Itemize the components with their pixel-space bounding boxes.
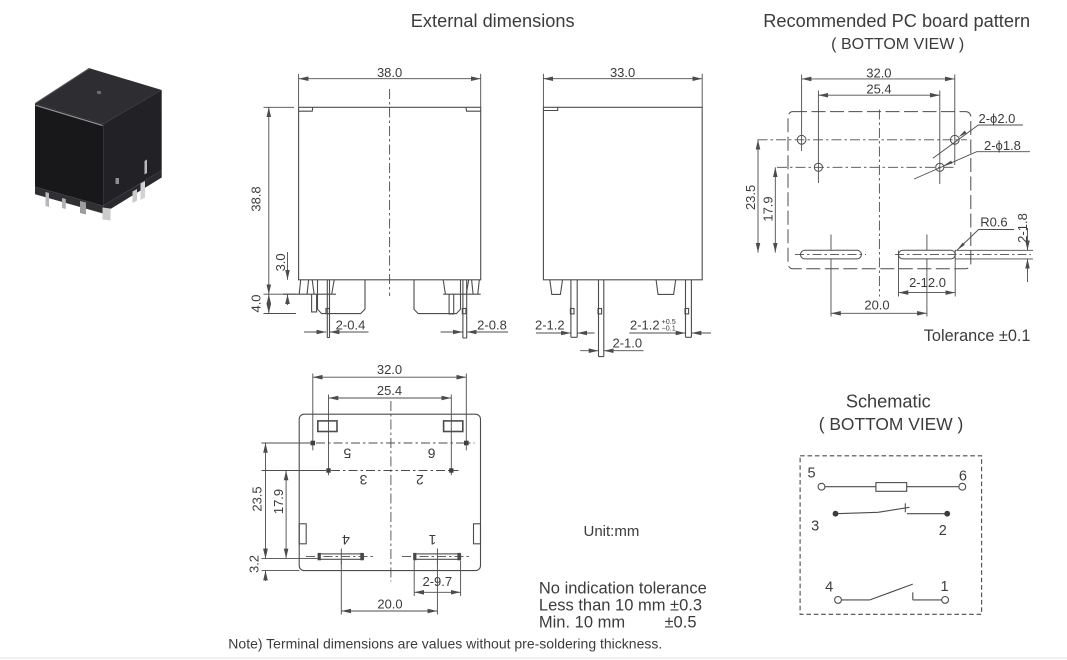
svg-text:32.0: 32.0 bbox=[377, 362, 402, 377]
svg-text:17.9: 17.9 bbox=[271, 489, 286, 514]
svg-text:Note) Terminal dimensions are: Note) Terminal dimensions are values wit… bbox=[228, 636, 662, 652]
svg-text:3.0: 3.0 bbox=[273, 253, 288, 271]
svg-text:R0.6: R0.6 bbox=[980, 214, 1007, 229]
svg-text:Less than 10 mm ±0.3: Less than 10 mm ±0.3 bbox=[539, 596, 702, 614]
svg-text:±0.5: ±0.5 bbox=[665, 613, 697, 631]
svg-text:Tolerance ±0.1: Tolerance ±0.1 bbox=[924, 327, 1031, 345]
svg-text:2: 2 bbox=[416, 472, 424, 488]
svg-text:20.0: 20.0 bbox=[864, 297, 889, 312]
svg-text:4: 4 bbox=[825, 579, 833, 595]
svg-text:25.4: 25.4 bbox=[377, 383, 402, 398]
svg-text:External dimensions: External dimensions bbox=[411, 11, 575, 31]
svg-text:20.0: 20.0 bbox=[377, 597, 402, 612]
svg-text:2-1.8: 2-1.8 bbox=[1015, 213, 1030, 243]
svg-text:32.0: 32.0 bbox=[866, 65, 891, 80]
svg-text:−0.1: −0.1 bbox=[662, 323, 676, 332]
svg-text:38.8: 38.8 bbox=[249, 186, 264, 211]
svg-text:Unit:mm: Unit:mm bbox=[584, 523, 640, 540]
svg-text:6: 6 bbox=[959, 468, 967, 484]
svg-text:25.4: 25.4 bbox=[866, 82, 891, 97]
svg-text:3.2: 3.2 bbox=[246, 555, 261, 573]
svg-text:2-1.0: 2-1.0 bbox=[613, 336, 643, 351]
svg-text:3: 3 bbox=[811, 519, 819, 535]
svg-text:2-ϕ1.8: 2-ϕ1.8 bbox=[984, 138, 1021, 153]
svg-text:23.5: 23.5 bbox=[250, 486, 265, 511]
svg-text:( BOTTOM VIEW ): ( BOTTOM VIEW ) bbox=[831, 36, 964, 53]
svg-text:2-0.4: 2-0.4 bbox=[336, 317, 366, 332]
svg-text:Min. 10 mm: Min. 10 mm bbox=[539, 613, 625, 631]
svg-text:17.9: 17.9 bbox=[761, 196, 776, 221]
svg-text:Recommended PC board pattern: Recommended PC board pattern bbox=[763, 11, 1030, 31]
svg-text:33.0: 33.0 bbox=[610, 65, 635, 80]
svg-text:4.0: 4.0 bbox=[249, 294, 264, 312]
svg-text:4: 4 bbox=[342, 532, 350, 548]
svg-text:1: 1 bbox=[428, 532, 436, 548]
svg-text:6: 6 bbox=[427, 446, 435, 462]
svg-text:1: 1 bbox=[940, 579, 948, 595]
svg-text:3: 3 bbox=[359, 472, 367, 488]
svg-text:2-0.8: 2-0.8 bbox=[477, 317, 507, 332]
svg-text:23.5: 23.5 bbox=[743, 185, 758, 210]
svg-text:2: 2 bbox=[939, 523, 947, 539]
svg-text:2-1.2: 2-1.2 bbox=[630, 318, 660, 333]
svg-text:2-1.2: 2-1.2 bbox=[535, 318, 565, 333]
svg-text:Schematic: Schematic bbox=[846, 392, 931, 412]
svg-text:2-9.7: 2-9.7 bbox=[422, 574, 452, 589]
svg-text:38.0: 38.0 bbox=[377, 65, 402, 80]
svg-text:( BOTTOM VIEW ): ( BOTTOM VIEW ) bbox=[819, 414, 964, 434]
svg-text:5: 5 bbox=[343, 446, 351, 462]
svg-text:2-ϕ2.0: 2-ϕ2.0 bbox=[979, 111, 1016, 126]
svg-text:5: 5 bbox=[808, 465, 816, 481]
svg-text:No indication tolerance: No indication tolerance bbox=[539, 579, 707, 597]
svg-text:2-12.0: 2-12.0 bbox=[909, 275, 946, 290]
